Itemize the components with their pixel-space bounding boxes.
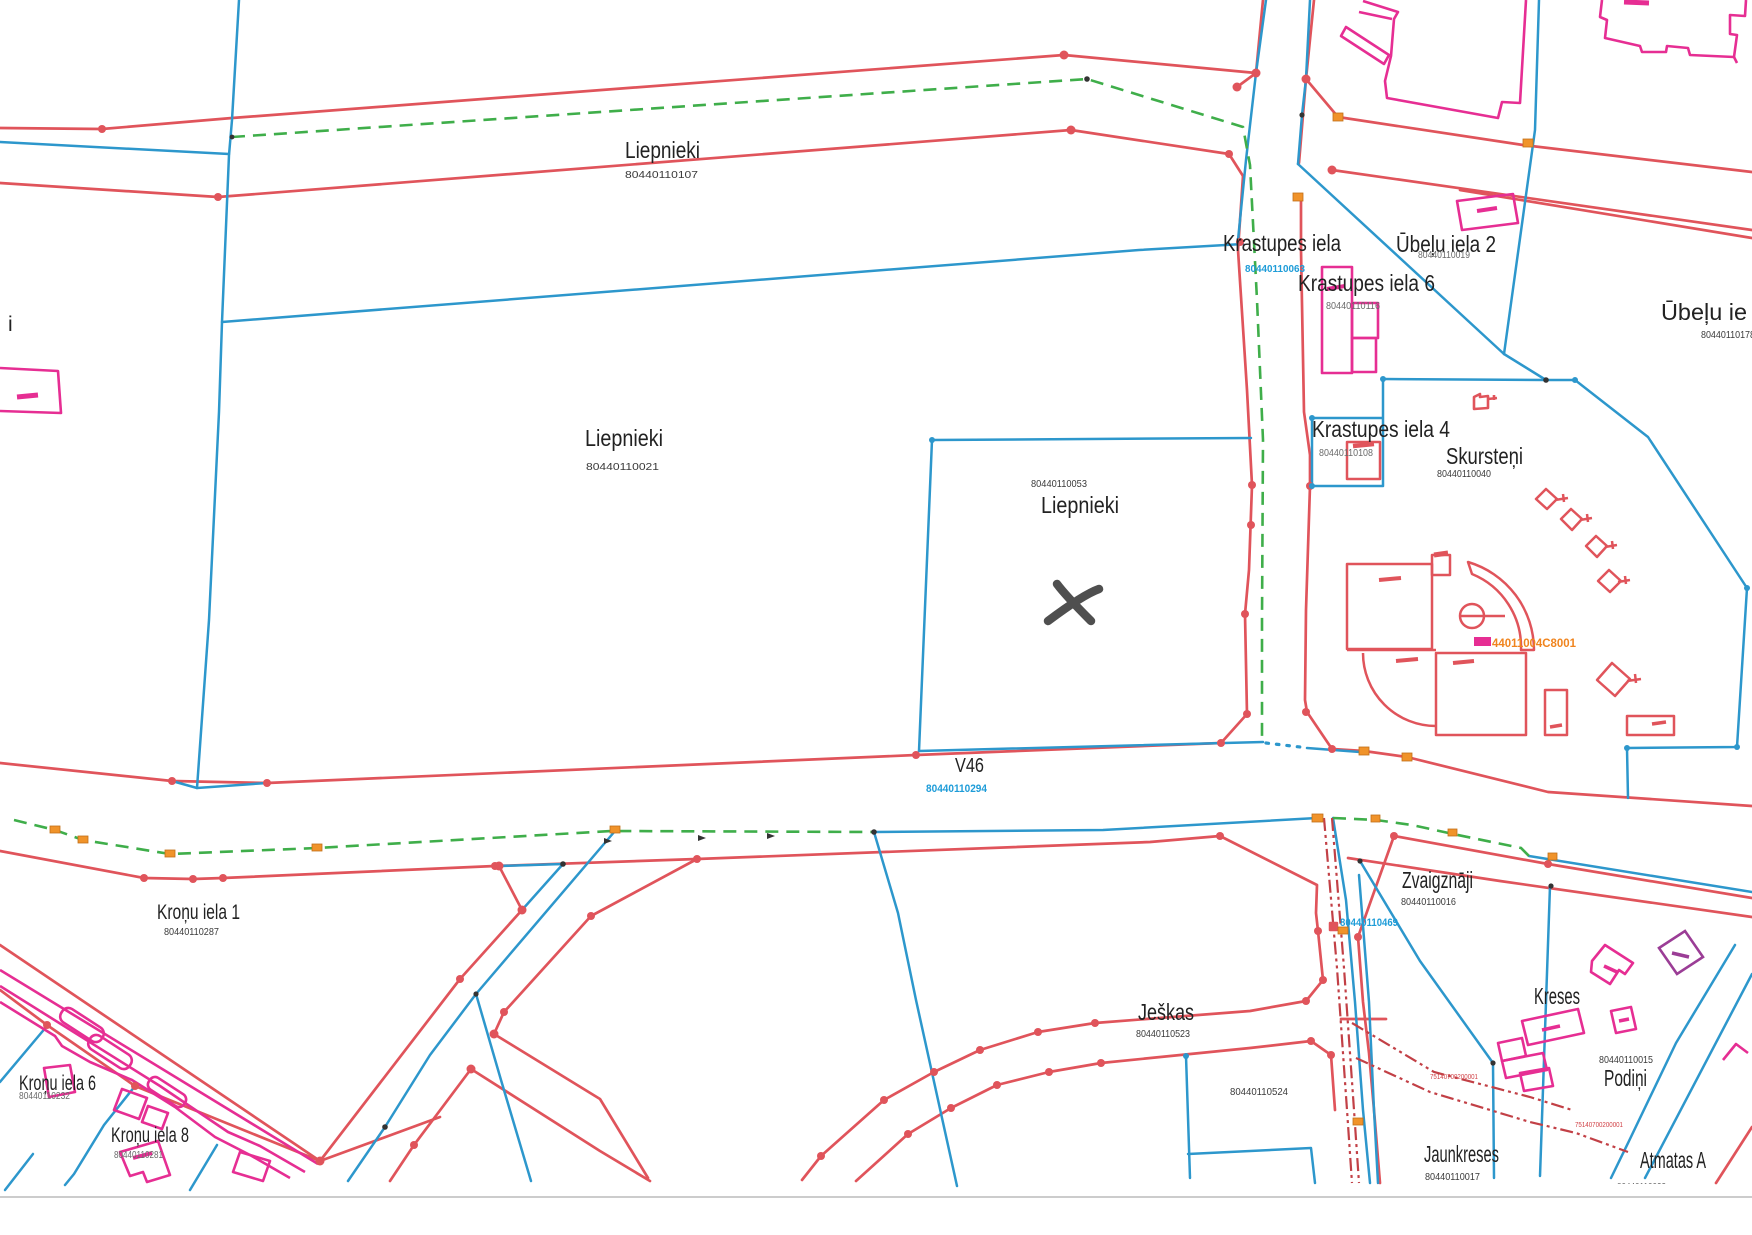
svg-text:80440110053: 80440110053 xyxy=(1031,478,1087,490)
svg-text:75140700200001: 75140700200001 xyxy=(1430,1074,1478,1081)
svg-text:80440110178: 80440110178 xyxy=(1701,329,1752,341)
svg-text:80440110019: 80440110019 xyxy=(1418,249,1470,261)
svg-text:80440110523: 80440110523 xyxy=(1136,1028,1190,1040)
svg-text:Atmatas A: Atmatas A xyxy=(1640,1147,1706,1173)
svg-text:Liepnieki: Liepnieki xyxy=(1041,492,1119,518)
svg-text:Krastupes iela: Krastupes iela xyxy=(1223,230,1341,256)
svg-text:Krastupes iela 6: Krastupes iela 6 xyxy=(1298,270,1435,296)
svg-text:80440110040: 80440110040 xyxy=(1437,468,1491,480)
svg-text:Liepnieki: Liepnieki xyxy=(585,425,663,451)
svg-text:80440110469: 80440110469 xyxy=(1340,917,1398,929)
svg-text:80440110107: 80440110107 xyxy=(625,169,698,181)
svg-text:Krastupes iela 4: Krastupes iela 4 xyxy=(1312,416,1450,442)
svg-text:75140700200001: 75140700200001 xyxy=(1575,1122,1623,1129)
svg-text:44011004C8001: 44011004C8001 xyxy=(1492,638,1577,650)
svg-text:V46: V46 xyxy=(955,755,984,777)
svg-text:Kroņu iela 1: Kroņu iela 1 xyxy=(157,901,240,924)
svg-text:80440110524: 80440110524 xyxy=(1230,1086,1288,1098)
svg-text:Kroņu iela 8: Kroņu iela 8 xyxy=(111,1124,189,1147)
svg-text:Skursteņi: Skursteņi xyxy=(1446,443,1523,469)
svg-text:80440110287: 80440110287 xyxy=(164,926,219,938)
svg-text:Ješkas: Ješkas xyxy=(1138,999,1194,1025)
svg-text:80440110281: 80440110281 xyxy=(114,1149,163,1161)
svg-text:Liepnieki: Liepnieki xyxy=(625,137,700,163)
svg-text:80440110016: 80440110016 xyxy=(1401,896,1456,908)
svg-text:80440110108: 80440110108 xyxy=(1319,447,1373,459)
svg-text:i: i xyxy=(8,313,13,336)
svg-text:Kreses: Kreses xyxy=(1534,983,1580,1009)
svg-text:80440110063: 80440110063 xyxy=(1245,263,1305,275)
svg-text:80440110294: 80440110294 xyxy=(926,783,988,795)
svg-text:Podiņi: Podiņi xyxy=(1604,1065,1647,1091)
svg-text:80440110021: 80440110021 xyxy=(586,461,659,473)
svg-text:80440110017: 80440110017 xyxy=(1425,1171,1480,1183)
svg-text:Zvaigznāji: Zvaigznāji xyxy=(1402,867,1473,893)
svg-text:80440110116: 80440110116 xyxy=(1326,300,1380,312)
svg-text:80440110232: 80440110232 xyxy=(19,1090,70,1102)
svg-text:Jaunkreses: Jaunkreses xyxy=(1424,1141,1499,1167)
svg-text:Ūbeļu ie: Ūbeļu ie xyxy=(1661,299,1747,325)
